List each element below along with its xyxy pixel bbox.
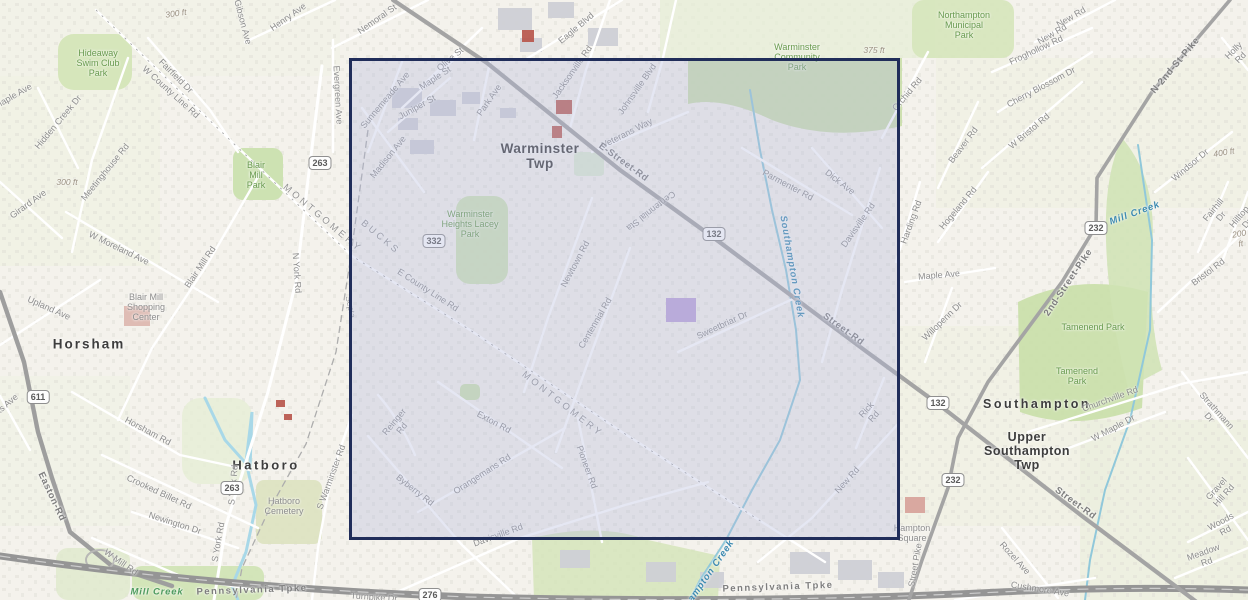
selection-rectangle[interactable] — [349, 58, 900, 540]
map-canvas[interactable]: Warminster TwpHorshamHatboroSouthamptonU… — [0, 0, 1248, 600]
